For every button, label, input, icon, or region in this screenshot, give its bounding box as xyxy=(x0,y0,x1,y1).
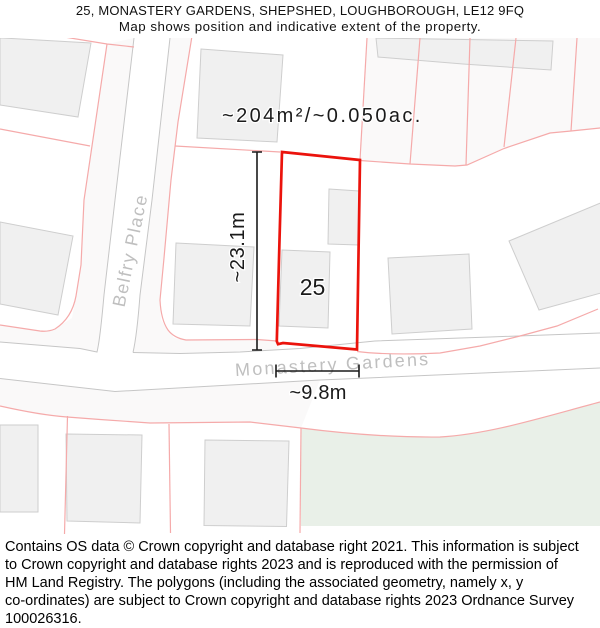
svg-text:~204m²/~0.050ac.: ~204m²/~0.050ac. xyxy=(222,105,423,127)
svg-text:~9.8m: ~9.8m xyxy=(289,382,346,404)
svg-text:~23.1m: ~23.1m xyxy=(227,212,249,283)
svg-text:25: 25 xyxy=(300,274,326,300)
